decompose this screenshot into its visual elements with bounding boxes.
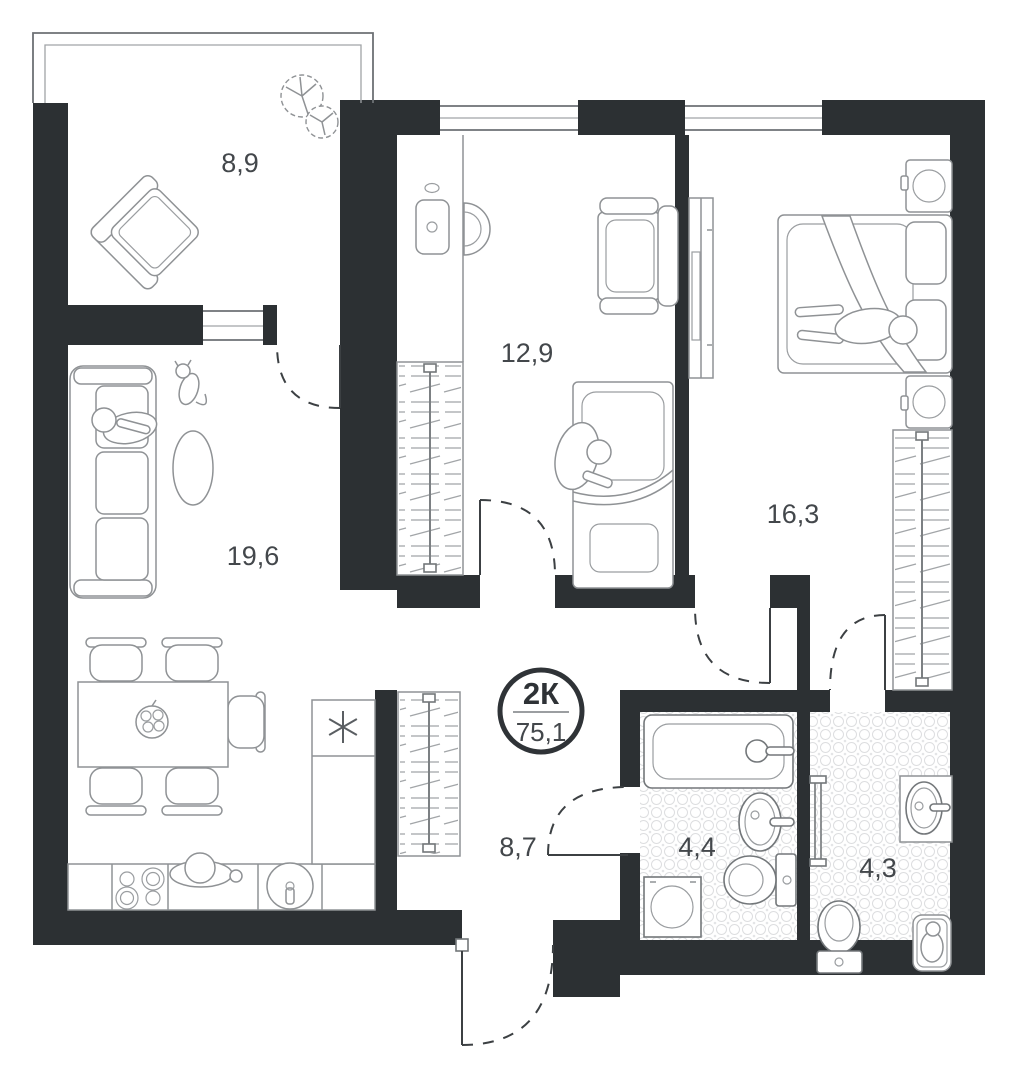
- fruit-bowl: [136, 706, 168, 738]
- wall-segment: [620, 853, 640, 940]
- room-area-label-ensuite: 4,3: [859, 853, 897, 883]
- wardrobe: [398, 692, 460, 856]
- balcony-door-swing: [277, 345, 340, 408]
- wall-segment: [822, 100, 985, 135]
- cat: [175, 360, 206, 407]
- bathtub: [644, 715, 794, 788]
- wall-segment: [397, 575, 480, 608]
- wall-segment: [675, 135, 689, 575]
- wall-segment: [885, 690, 950, 712]
- sofa: [70, 366, 156, 598]
- wardrobe: [397, 362, 463, 575]
- wardrobe: [893, 430, 952, 690]
- apartment-floorplan: 2К 75,1 8,9 12,9 16,3 19,6 8,7 4,4 4,3: [0, 0, 1018, 1080]
- wall-segment: [33, 103, 68, 945]
- entrance-door-swing: [456, 939, 553, 1045]
- ensuite-door-swing: [830, 615, 885, 690]
- apartment-badge: 2К 75,1: [500, 670, 582, 752]
- window: [203, 311, 263, 340]
- balcony-armchair: [88, 173, 207, 292]
- stool: [464, 203, 490, 255]
- wall-segment: [375, 690, 397, 945]
- plant: [281, 75, 338, 138]
- wall-segment: [620, 690, 830, 712]
- kitchen-sink: [267, 863, 313, 909]
- window: [685, 106, 822, 130]
- wall-segment: [553, 920, 620, 997]
- coffee-table: [173, 431, 213, 505]
- washing-machine: [644, 877, 701, 937]
- dining-set: [78, 638, 265, 815]
- single-bed: [573, 382, 673, 588]
- toilet: [724, 854, 796, 906]
- wall-segment: [373, 100, 440, 135]
- wall-segment: [770, 575, 810, 608]
- room-area-label-bedroom: 16,3: [767, 499, 820, 529]
- wall-segment: [797, 712, 810, 940]
- cat-litter-box: [913, 915, 951, 971]
- wall-segment: [578, 100, 685, 135]
- room-area-label-bathroom: 4,4: [678, 832, 716, 862]
- bathroom-door-swing: [548, 787, 628, 855]
- room-area-label-hallway: 8,7: [499, 832, 537, 862]
- window: [440, 106, 578, 130]
- double-bed: [778, 215, 952, 373]
- bedroom-door-swing: [695, 608, 770, 683]
- wall-segment: [620, 712, 640, 787]
- toilet: [817, 901, 862, 973]
- apartment-total-area: 75,1: [516, 717, 567, 747]
- wall-segment: [33, 305, 203, 345]
- nightstand: [901, 160, 952, 212]
- dressing-table: [416, 184, 449, 255]
- refrigerator: [312, 700, 375, 864]
- nightstand: [901, 376, 952, 428]
- room-area-label-living: 19,6: [227, 541, 280, 571]
- wall-segment: [340, 100, 397, 590]
- apartment-type-label: 2К: [523, 676, 559, 711]
- wall-segment: [950, 135, 985, 975]
- room-area-label-balcony: 8,9: [221, 148, 259, 178]
- sliding-wardrobe: [689, 198, 713, 378]
- room-door-swing: [480, 500, 555, 575]
- wall-segment: [263, 305, 277, 345]
- armchair: [598, 198, 678, 314]
- room-area-label-room: 12,9: [501, 338, 554, 368]
- wall-segment: [35, 910, 462, 945]
- bathroom-sink: [900, 776, 952, 842]
